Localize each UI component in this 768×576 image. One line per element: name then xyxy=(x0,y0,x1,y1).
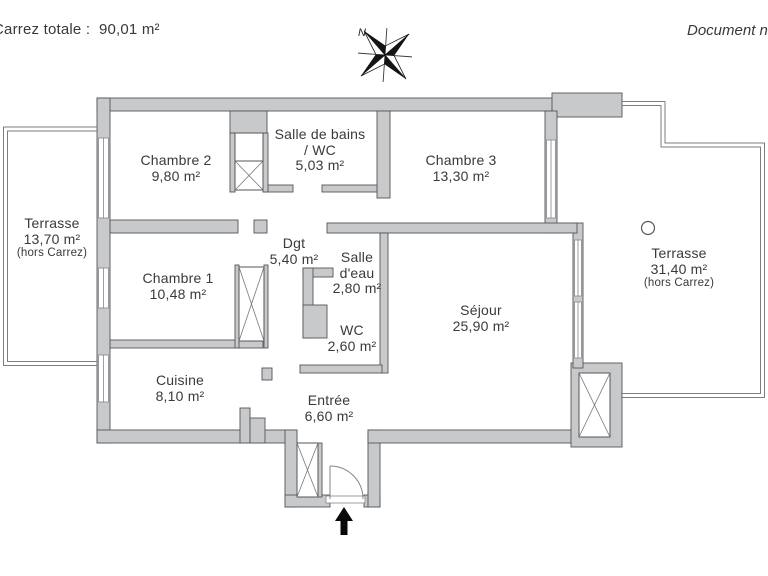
room-label-cuisine: Cuisine 8,10 m² xyxy=(156,373,205,404)
duct-box xyxy=(235,133,263,161)
duct-crossed-box xyxy=(235,161,263,190)
room-label-chambre2: Chambre 2 9,80 m² xyxy=(140,153,211,184)
room-label-entree: Entrée 6,60 m² xyxy=(305,393,354,424)
window-chambre2 xyxy=(99,138,109,218)
room-label-wc: WC 2,60 m² xyxy=(328,323,377,354)
floorplan-page: Carrez totale : 90,01 m² Document n xyxy=(0,0,768,576)
room-label-dgt: Dgt 5,40 m² xyxy=(270,236,319,267)
entrance-arrow-icon xyxy=(335,507,353,535)
window-sejour-1 xyxy=(575,240,582,296)
room-label-chambre1: Chambre 1 10,48 m² xyxy=(142,271,213,302)
room-label-salle-deau: Salle d'eau 2,80 m² xyxy=(333,250,382,297)
sejour-closet xyxy=(579,373,610,437)
room-label-chambre3: Chambre 3 13,30 m² xyxy=(425,153,496,184)
room-label-terrasse-left: Terrasse 13,70 m² (hors Carrez) xyxy=(17,216,87,260)
window-chambre3 xyxy=(547,140,556,218)
terrace-column-icon xyxy=(642,222,655,235)
window-cuisine xyxy=(99,355,109,402)
window-sejour-2 xyxy=(575,302,582,358)
compass-north-label: N xyxy=(358,27,366,39)
room-label-terrasse-right: Terrasse 31,40 m² (hors Carrez) xyxy=(644,246,714,290)
compass-icon: N xyxy=(340,10,430,100)
entree-closet xyxy=(297,443,318,497)
chambre1-closet xyxy=(239,267,264,341)
room-label-salle-de-bains: Salle de bains / WC 5,03 m² xyxy=(275,127,366,174)
window-chambre1 xyxy=(99,268,109,308)
room-label-sejour: Séjour 25,90 m² xyxy=(453,303,510,334)
entrance-door xyxy=(326,466,365,503)
